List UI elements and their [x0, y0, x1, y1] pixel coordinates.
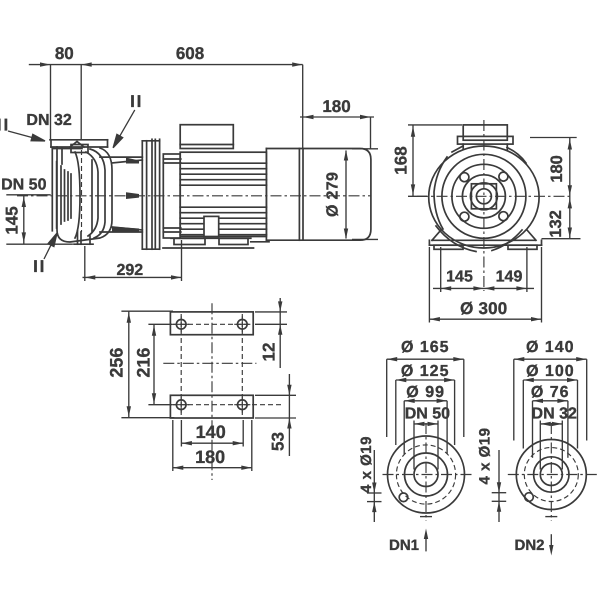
- svg-text:II: II: [0, 115, 10, 134]
- svg-text:145: 145: [2, 206, 21, 234]
- svg-text:608: 608: [176, 44, 204, 63]
- svg-text:II: II: [33, 257, 46, 276]
- svg-text:II: II: [130, 92, 143, 111]
- svg-text:4 x Ø19: 4 x Ø19: [358, 436, 375, 493]
- svg-text:DN 32: DN 32: [26, 112, 71, 129]
- svg-text:145: 145: [446, 269, 473, 286]
- svg-text:292: 292: [116, 262, 143, 279]
- svg-text:4 x Ø19: 4 x Ø19: [477, 428, 494, 485]
- svg-text:Ø 300: Ø 300: [460, 299, 507, 318]
- svg-text:12: 12: [260, 343, 279, 362]
- svg-text:DN1: DN1: [389, 537, 419, 554]
- svg-text:216: 216: [133, 348, 153, 378]
- svg-text:149: 149: [496, 269, 523, 286]
- svg-text:DN 50: DN 50: [1, 176, 46, 193]
- svg-text:Ø 100: Ø 100: [526, 363, 575, 380]
- svg-text:Ø 279: Ø 279: [325, 172, 342, 217]
- svg-text:168: 168: [392, 146, 411, 174]
- svg-text:80: 80: [55, 44, 74, 63]
- svg-text:Ø 165: Ø 165: [401, 339, 450, 356]
- svg-text:180: 180: [322, 97, 350, 116]
- svg-text:Ø 76: Ø 76: [531, 384, 570, 401]
- svg-text:256: 256: [106, 348, 126, 378]
- svg-text:DN2: DN2: [514, 537, 544, 554]
- svg-text:180: 180: [195, 447, 225, 467]
- svg-text:180: 180: [548, 155, 566, 183]
- svg-text:Ø 99: Ø 99: [406, 384, 445, 401]
- svg-text:Ø 140: Ø 140: [526, 339, 575, 356]
- svg-text:132: 132: [547, 210, 565, 238]
- svg-text:53: 53: [269, 432, 288, 451]
- svg-text:Ø 125: Ø 125: [401, 363, 450, 380]
- svg-text:DN 50: DN 50: [405, 406, 450, 423]
- svg-text:140: 140: [196, 422, 226, 442]
- svg-text:DN 32: DN 32: [532, 406, 577, 423]
